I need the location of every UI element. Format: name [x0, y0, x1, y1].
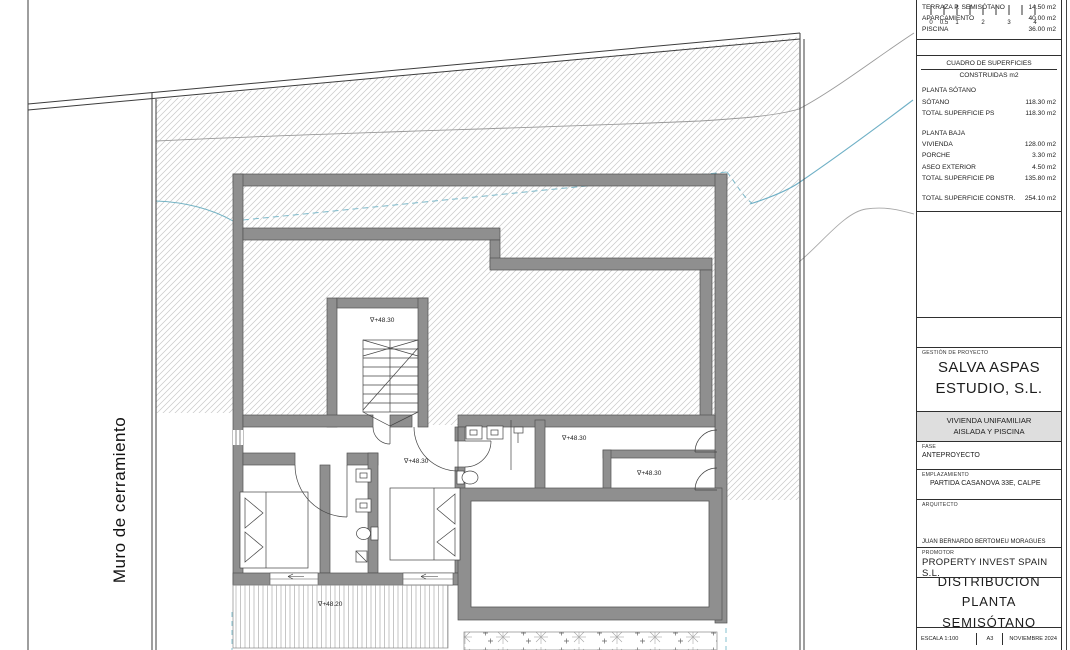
table-row: TOTAL SUPERFICIE PB 135.80 m2	[922, 173, 1056, 184]
level-label-stairs: ∇+48.30	[369, 316, 395, 324]
project-name-line1: VIVIENDA UNIFAMILIAR	[922, 416, 1056, 426]
project-name-line2: AISLADA Y PISCINA	[922, 427, 1056, 437]
door-corridor-right	[695, 430, 717, 452]
promotor-panel: PROMOTOR PROPERTY INVEST SPAIN S.L.	[917, 548, 1061, 578]
arquitecto-panel: ARQUITECTO JUAN BERNARDO BERTOMEU MORAGU…	[917, 500, 1061, 548]
promotor-label: PROMOTOR	[922, 550, 1056, 557]
graphic-scale: 0 0.5 1 2 3 4	[917, 318, 1061, 348]
window-left-wall	[233, 430, 243, 445]
studio-panel: GESTIÓN DE PROYECTO SALVA ASPAS ESTUDIO,…	[917, 348, 1061, 412]
table-subtitle: CONSTRUIDAS m2	[922, 70, 1056, 81]
date-text: NOVIEMBRE 2024	[1003, 633, 1061, 645]
emplazamiento-value: PARTIDA CASANOVA 33E, CALPE	[922, 479, 1056, 490]
level-label-bedrooms: ∇+48.30	[403, 457, 429, 465]
bed-2	[390, 488, 460, 560]
section-heading: PLANTA BAJA	[922, 128, 1056, 139]
drawing-sheet: ∇+48.30 ∇+48.30 ∇+48.30 ∇+48.30 ∇+48.20 …	[0, 0, 1070, 650]
table-row: SÓTANO 118.30 m2	[922, 97, 1056, 108]
door-bedroom-2	[373, 427, 390, 444]
sheet-frame-right	[1066, 0, 1067, 650]
planting-bed	[464, 632, 717, 650]
fase-panel: FASE ANTEPROYECTO	[917, 442, 1061, 470]
promotor-value: PROPERTY INVEST SPAIN S.L.	[922, 557, 1056, 578]
emplazamiento-panel: EMPLAZAMIENTO PARTIDA CASANOVA 33E, CALP…	[917, 470, 1061, 500]
fase-value: ANTEPROYECTO	[922, 451, 1056, 462]
bed-1	[240, 492, 308, 568]
door-bathroom-2	[465, 441, 491, 467]
studio-name-line2: ESTUDIO, S.L.	[922, 380, 1056, 399]
pool	[458, 488, 722, 620]
door-storage-right	[695, 468, 717, 490]
fase-label: FASE	[922, 444, 1056, 451]
scale-text: ESCALA 1:100	[917, 633, 977, 645]
level-label-terrace: ∇+48.20	[317, 600, 343, 608]
slider-window-1	[270, 573, 318, 585]
table-row: PORCHE 3.30 m2	[922, 150, 1056, 161]
shower-head-icon	[514, 427, 523, 433]
drawing-title-line2: PLANTA SEMISÓTANO	[922, 592, 1056, 628]
bathroom-2-fixtures	[457, 420, 523, 484]
floor-plan-canvas: ∇+48.30 ∇+48.30 ∇+48.30 ∇+48.30 ∇+48.20	[0, 0, 1070, 650]
slider-window-2	[403, 573, 453, 585]
table-row: PISCINA 36.00 m2	[922, 24, 1056, 35]
gestion-label: GESTIÓN DE PROYECTO	[922, 350, 1056, 357]
table-row: TOTAL SUPERFICIE PS 118.30 m2	[922, 108, 1056, 119]
table-row: VIVIENDA 128.00 m2	[922, 139, 1056, 150]
pool-basin	[471, 501, 709, 607]
stairwell-floor	[337, 308, 418, 425]
sheet-footer: ESCALA 1:100 A3 NOVIEMBRE 2024	[917, 628, 1061, 650]
empty-panel	[917, 212, 1061, 318]
perimeter-wall-label: Muro de cerramiento	[110, 390, 130, 610]
table-title: CUADRO DE SUPERFICIES	[921, 58, 1057, 70]
toilet-icon	[371, 527, 378, 540]
emplazamiento-label: EMPLAZAMIENTO	[922, 472, 1056, 479]
surfaces-built-table: CUADRO DE SUPERFICIES CONSTRUIDAS m2 PLA…	[917, 56, 1061, 212]
spacer-row	[917, 40, 1061, 56]
drawing-title: DISTRIBUCIÓN PLANTA SEMISÓTANO	[917, 578, 1061, 628]
project-name-banner: VIVIENDA UNIFAMILIAR AISLADA Y PISCINA	[917, 412, 1061, 442]
level-label-storage: ∇+48.30	[636, 469, 662, 477]
arquitecto-value: JUAN BERNARDO BERTOMEU MORAGUES	[922, 539, 1056, 545]
terrace-deck	[233, 585, 448, 648]
level-label-hall: ∇+48.30	[561, 434, 587, 442]
drawing-title-line1: DISTRIBUCIÓN	[922, 578, 1056, 592]
paper-size: A3	[977, 633, 1003, 645]
title-block: TERRAZA P. SEMISÓTANO 14.50 m2 APARCAMIE…	[916, 0, 1062, 650]
arquitecto-label: ARQUITECTO	[922, 502, 1056, 509]
section-heading: PLANTA SÓTANO	[922, 85, 1056, 96]
table-total-row: TOTAL SUPERFICIE CONSTR. 254.10 m2	[922, 193, 1056, 204]
table-row: ASEO EXTERIOR 4.50 m2	[922, 162, 1056, 173]
studio-name-line1: SALVA ASPAS	[922, 359, 1056, 378]
